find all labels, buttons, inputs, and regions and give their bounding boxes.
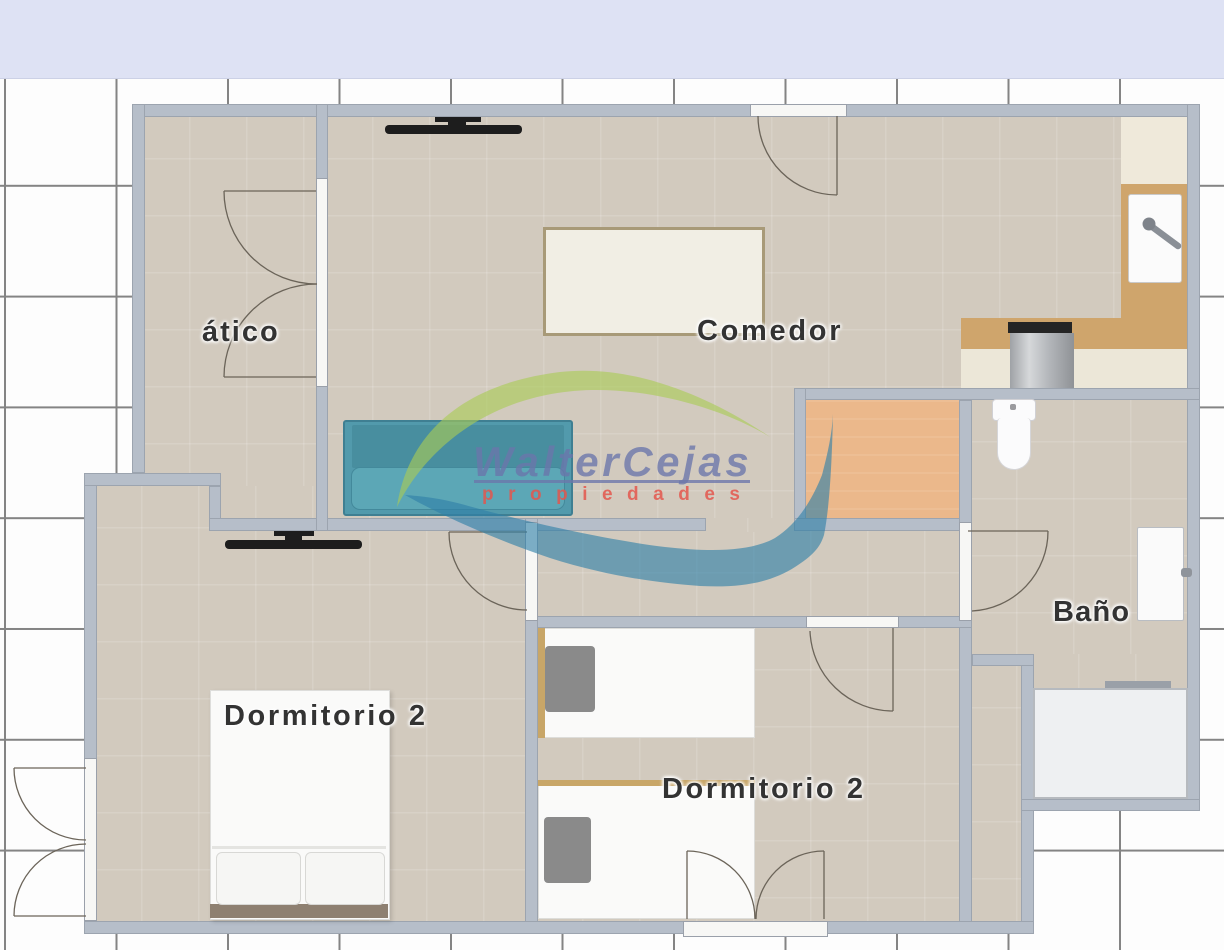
svg-text:WalterCejas: WalterCejas [473, 438, 752, 485]
svg-text:propiedades: propiedades [482, 484, 754, 505]
